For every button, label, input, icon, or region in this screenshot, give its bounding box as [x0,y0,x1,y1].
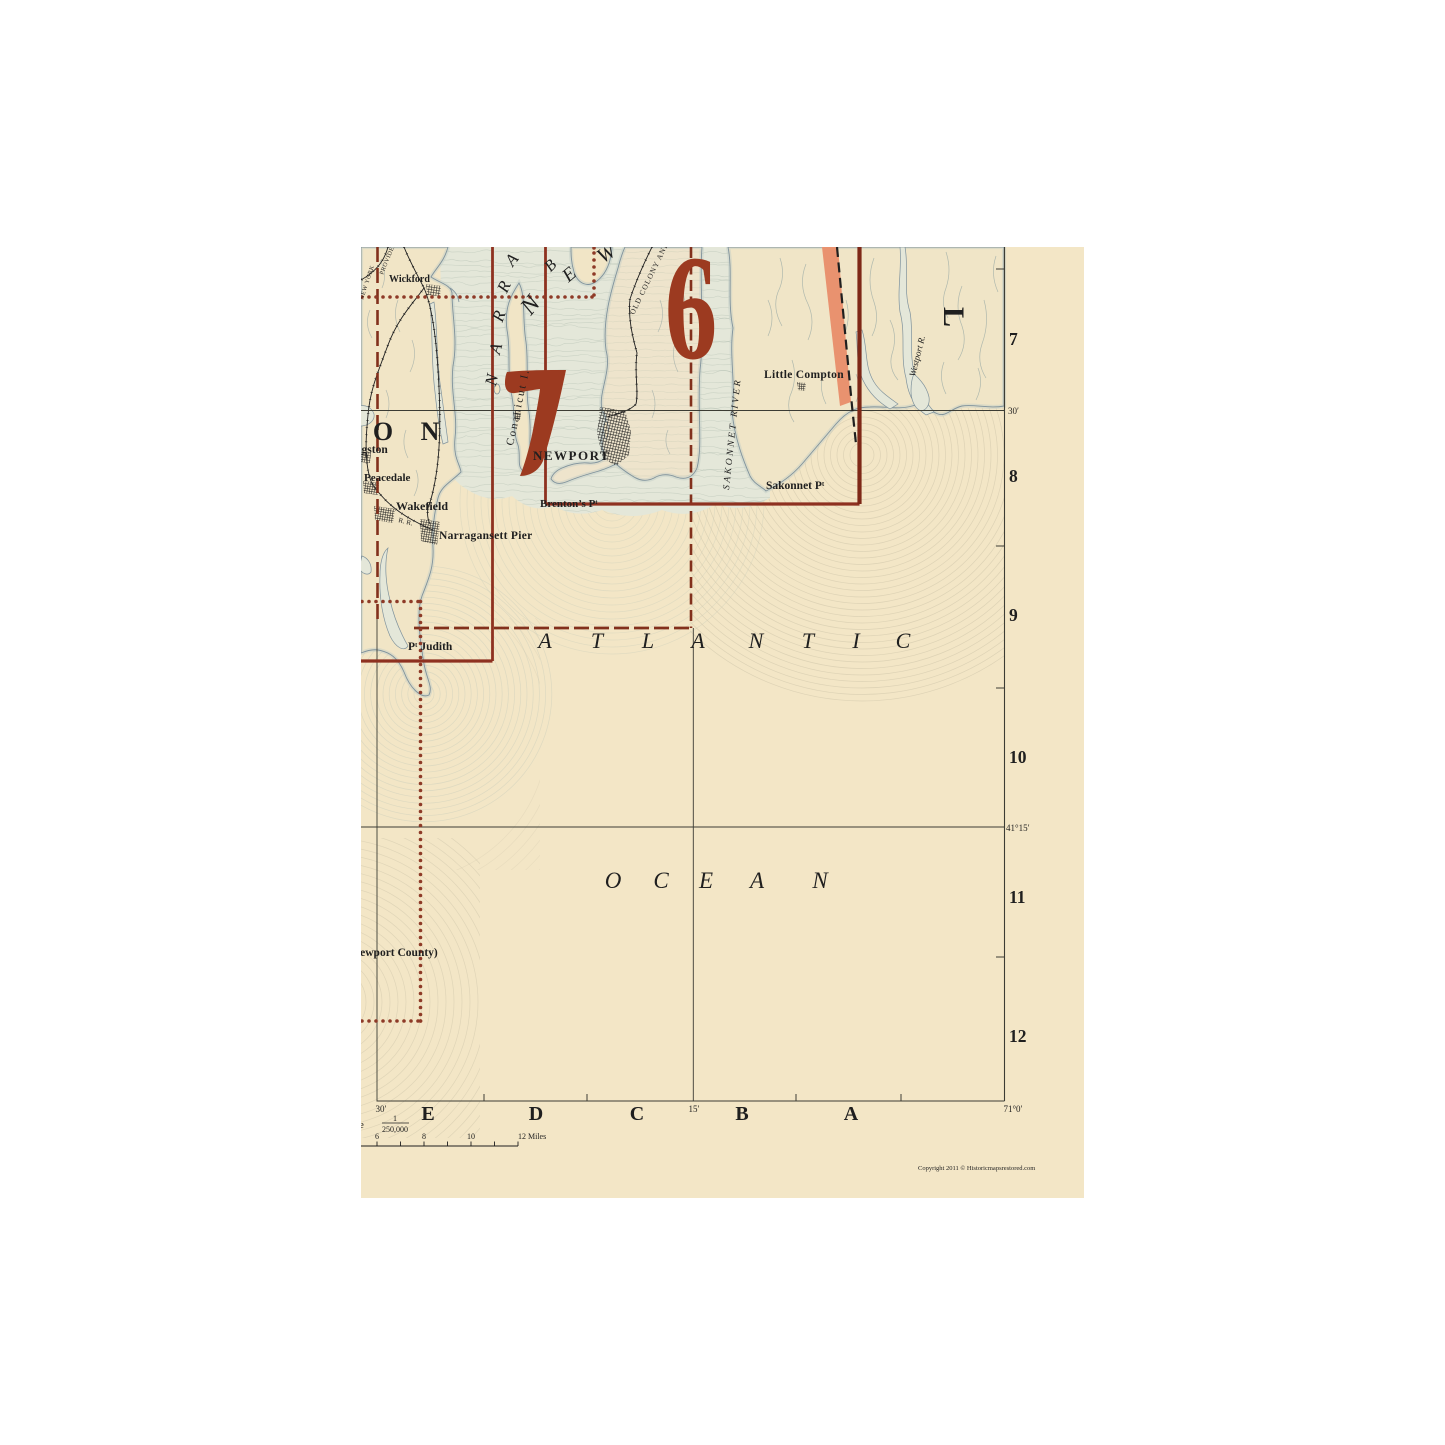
svg-text:N: N [811,868,829,893]
svg-text:Wakefield: Wakefield [396,499,448,513]
svg-text:7: 7 [1009,329,1018,349]
svg-text:15′: 15′ [689,1104,700,1114]
svg-text:10: 10 [467,1132,475,1141]
svg-text:O: O [605,868,622,893]
svg-text:C: C [630,1103,644,1125]
svg-text:B: B [735,1103,748,1125]
svg-text:Sakonnet Pᵗ: Sakonnet Pᵗ [766,480,825,492]
svg-text:E: E [421,1103,434,1125]
svg-text:11: 11 [1009,887,1026,907]
svg-text:1: 1 [393,1114,397,1123]
svg-text:8: 8 [422,1132,426,1141]
svg-text:6: 6 [375,1132,379,1141]
svg-text:A: A [536,628,552,653]
svg-text:6: 6 [665,226,717,392]
svg-text:10: 10 [1009,747,1027,767]
svg-text:A: A [748,868,765,893]
svg-text:Peacedale: Peacedale [364,472,411,484]
svg-text:Brenton’s Pᵗ: Brenton’s Pᵗ [540,498,598,510]
svg-text:D: D [529,1103,543,1125]
svg-text:L: L [641,628,654,653]
svg-text:A: A [844,1103,859,1125]
svg-text:30′: 30′ [376,1104,387,1114]
svg-text:Pᵗ Judith: Pᵗ Judith [408,641,453,653]
svg-text:C: C [896,628,911,653]
svg-text:T: T [802,628,816,653]
svg-text:C: C [653,868,669,893]
svg-text:N: N [748,628,765,653]
svg-text:NEWPORT: NEWPORT [533,448,610,463]
svg-text:L: L [937,307,970,327]
svg-text:12 Miles: 12 Miles [518,1132,546,1141]
svg-text:41°15′: 41°15′ [1006,823,1030,833]
svg-text:30′: 30′ [1008,406,1019,416]
svg-text:71°0′: 71°0′ [1003,1104,1022,1114]
svg-text:A: A [689,628,705,653]
svg-text:O: O [373,417,393,446]
svg-text:8: 8 [1009,466,1018,486]
svg-text:12: 12 [1009,1026,1027,1046]
svg-text:Narragansett Pier: Narragansett Pier [439,530,533,542]
svg-text:Wickford: Wickford [389,274,430,285]
svg-text:Copyright 2011 © Historicmaps: Copyright 2011 © Historicmapsrestored.co… [918,1165,1035,1172]
svg-text:N: N [421,417,440,446]
svg-text:250,000: 250,000 [382,1125,408,1134]
svg-text:9: 9 [1009,605,1018,625]
svg-text:T: T [591,628,605,653]
svg-text:E: E [698,868,713,893]
svg-text:(Newport County): (Newport County) [348,947,438,959]
svg-text:Little Compton: Little Compton [764,369,844,381]
